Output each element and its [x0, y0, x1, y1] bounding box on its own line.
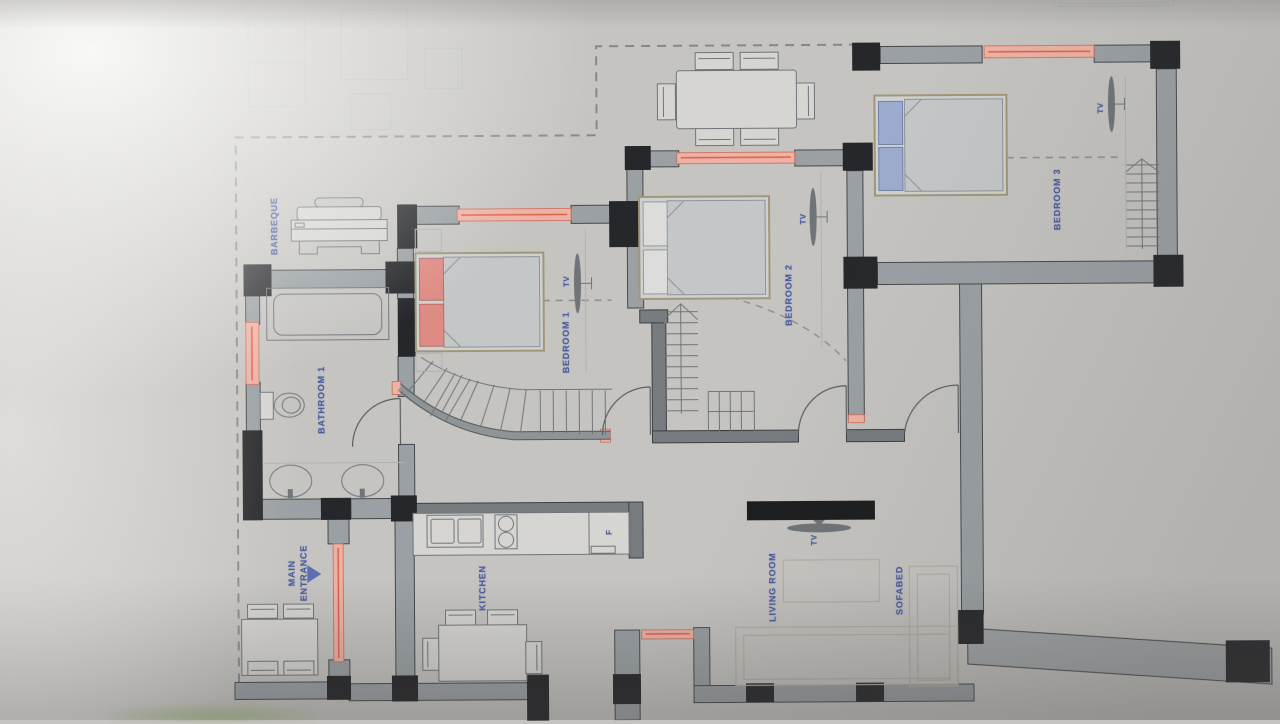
tv-living-room: [747, 501, 875, 533]
background-smudge: [108, 702, 318, 720]
tv-label-bedroom1: TV: [562, 276, 571, 287]
door-bathroom: [352, 398, 400, 446]
dining-set-kitchen: [423, 610, 542, 682]
tv-label-bedroom2: TV: [799, 213, 808, 224]
pillow-blue: [879, 147, 903, 190]
pillow-red: [420, 304, 444, 346]
tv-console: [747, 501, 875, 521]
pillow-blue: [878, 101, 902, 144]
vanity-counter: [265, 462, 405, 463]
kitchen-label: KITCHEN: [477, 565, 487, 611]
door-bedroom3: [904, 385, 958, 433]
staircase-bedroom3: [1125, 75, 1159, 249]
floor-plan: BARBEQUE BATHROOM 1 BEDROOM 1 BEDROOM 2 …: [0, 0, 1280, 724]
dining-set-terrace: [657, 52, 815, 146]
barbeque-grill: [291, 198, 387, 255]
bedroom1-label: BEDROOM 1: [561, 312, 571, 374]
dining-table: [439, 625, 527, 682]
tv-icon-bedroom2: [809, 188, 827, 246]
door-bedroom1: [602, 387, 650, 435]
pillow-white: [643, 250, 667, 294]
sofabed-label: SOFABED: [894, 566, 904, 615]
staircase-bedroom2: [664, 303, 755, 432]
tv-icon-bedroom1: [574, 253, 592, 313]
walls: [231, 44, 1272, 722]
pillow-white: [643, 202, 667, 246]
door-bedroom2: [798, 386, 846, 434]
bed-bedroom3: [874, 95, 1007, 196]
section-dashed-lines: [477, 157, 1124, 363]
living-room-label: LIVING ROOM: [767, 553, 777, 622]
dining-set-entrance: [241, 604, 317, 675]
dining-table: [676, 70, 796, 129]
tv-label-living-room: TV: [810, 534, 819, 545]
tv-screen: [787, 523, 851, 532]
bedroom3-label: BEDROOM 3: [1052, 169, 1062, 231]
bathtub: [267, 288, 389, 341]
barbeque-label: BARBEQUE: [269, 197, 279, 255]
pillow-red: [419, 258, 443, 300]
entrance-arrow-icon: [307, 565, 321, 583]
kitchen-counter: [413, 512, 631, 555]
toilet-tank: [260, 392, 273, 419]
bathroom-fixtures: [260, 287, 405, 498]
staircase-curved: [400, 356, 613, 440]
tv-icon-bedroom3: [1108, 76, 1125, 132]
bathroom1-label: BATHROOM 1: [316, 366, 326, 434]
tv-label-bedroom3: TV: [1096, 103, 1105, 114]
bedroom2-label: BEDROOM 2: [783, 264, 793, 326]
floor-plan-drawing: [0, 0, 1280, 724]
coffee-table: [783, 560, 879, 603]
fridge-label: F: [605, 530, 614, 535]
